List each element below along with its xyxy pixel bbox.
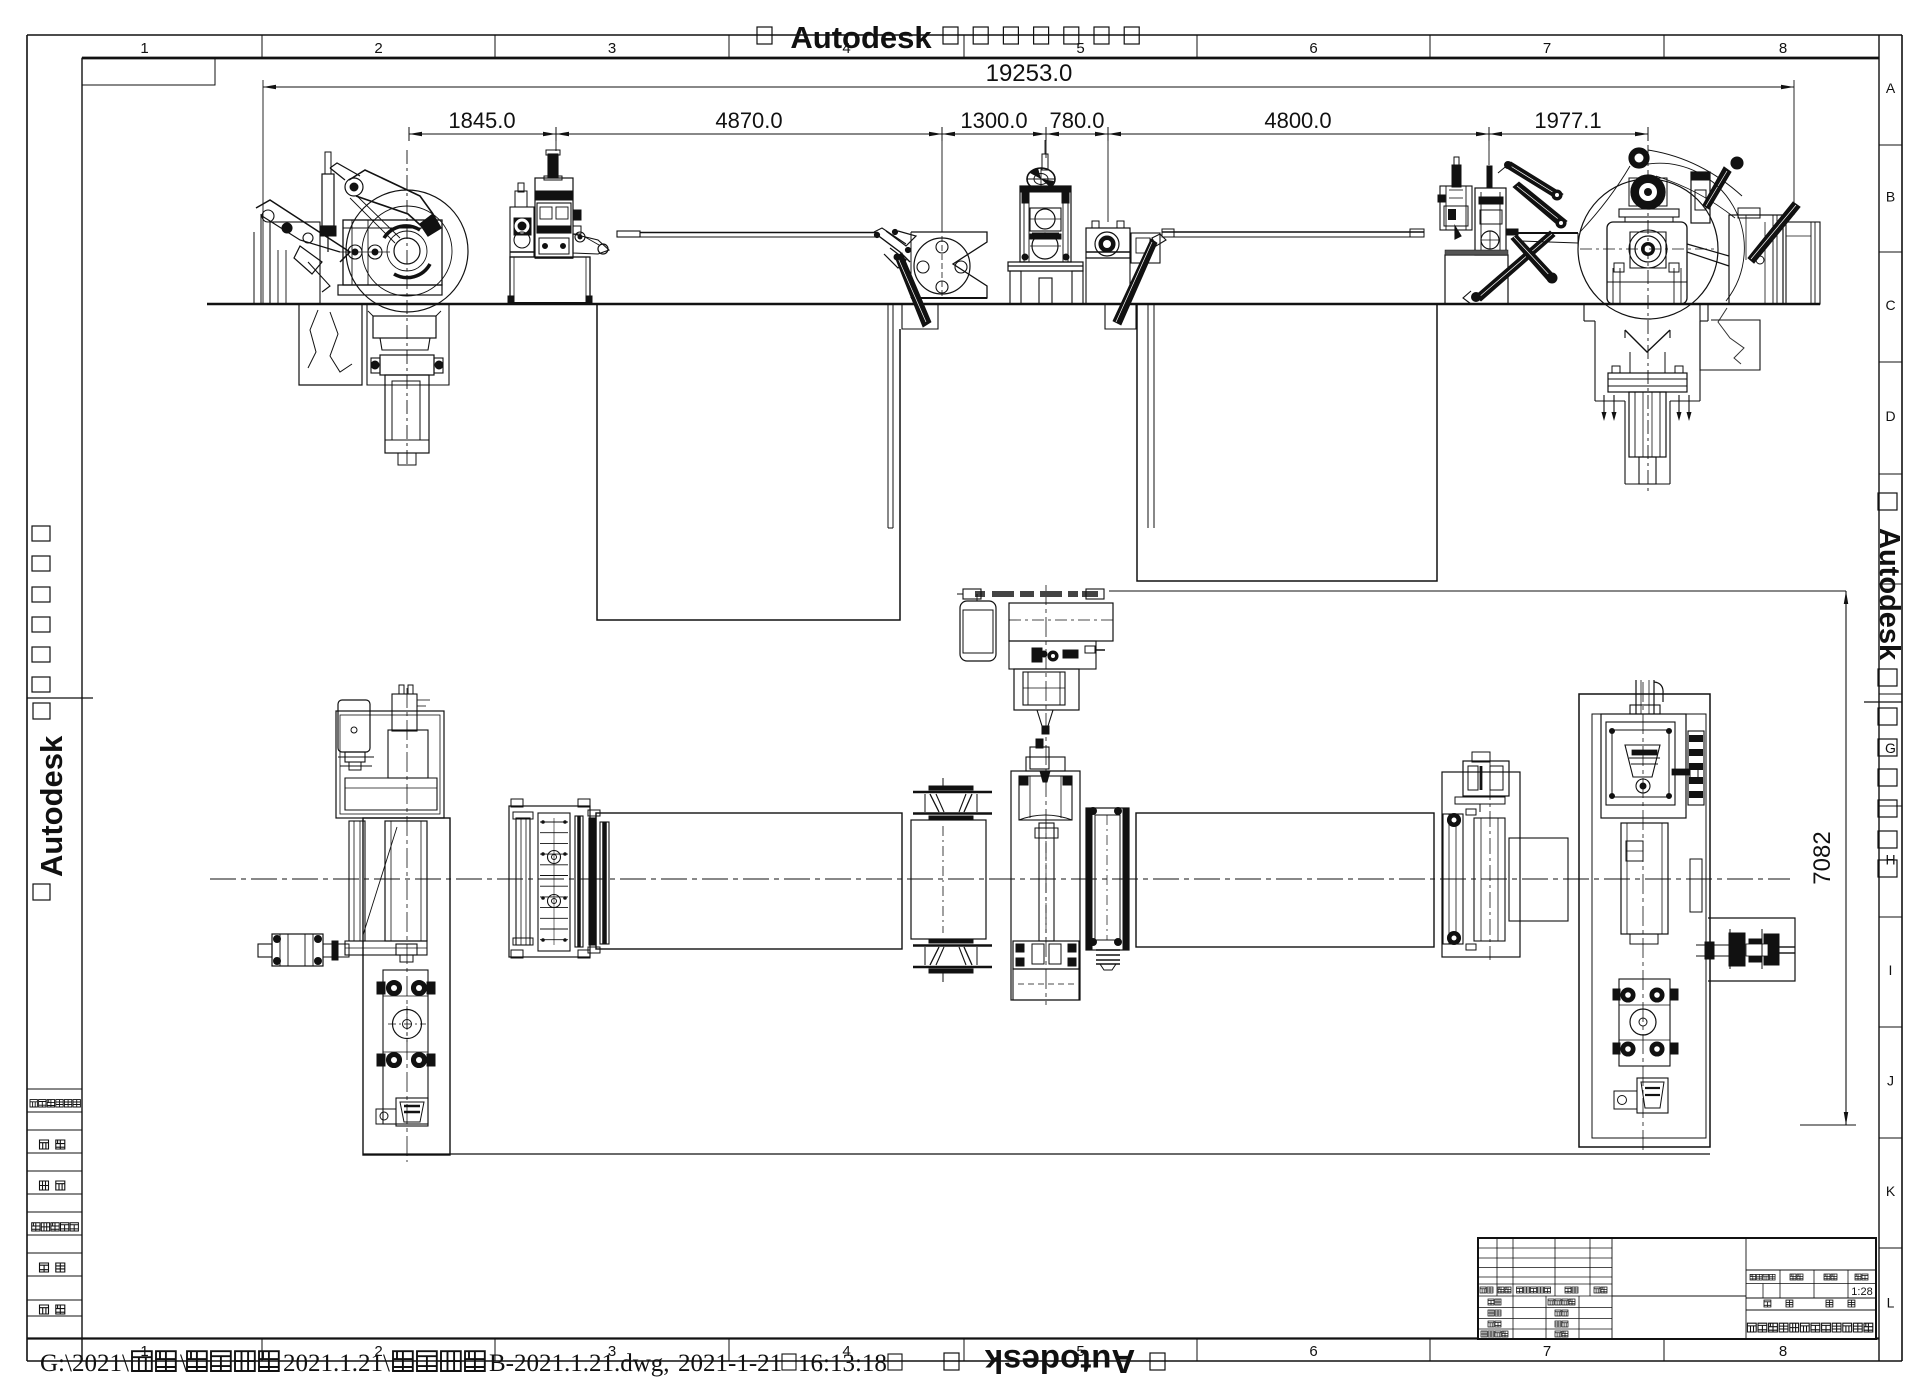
svg-text:8: 8 (1779, 1343, 1787, 1360)
svg-text:780.0: 780.0 (1049, 108, 1104, 133)
svg-text:1845.0: 1845.0 (448, 108, 515, 133)
svg-text:C: C (1885, 297, 1895, 313)
svg-text:B: B (1886, 189, 1895, 205)
svg-text:5: 5 (1076, 40, 1084, 57)
svg-text:K: K (1886, 1183, 1896, 1199)
svg-text:16:13:18: 16:13:18 (798, 1350, 887, 1377)
svg-text:A: A (1886, 80, 1896, 96)
svg-text:6: 6 (1309, 1343, 1317, 1360)
svg-text:Autodesk: Autodesk (34, 735, 69, 877)
svg-text:1300.0: 1300.0 (960, 108, 1027, 133)
svg-text:4800.0: 4800.0 (1264, 108, 1331, 133)
svg-text:2: 2 (374, 40, 382, 57)
svg-text:L: L (1887, 1295, 1895, 1311)
svg-text:I: I (1889, 962, 1893, 978)
svg-text:Autodesk: Autodesk (1873, 528, 1905, 661)
svg-text:4870.0: 4870.0 (715, 108, 782, 133)
svg-text:D: D (1885, 408, 1895, 424)
svg-text:\: \ (180, 1350, 187, 1377)
svg-text:2021-1-21: 2021-1-21 (678, 1350, 782, 1377)
svg-text:Autodesk: Autodesk (790, 20, 932, 55)
svg-text:7082: 7082 (1809, 831, 1836, 884)
svg-text:7: 7 (1543, 40, 1551, 57)
svg-text:19253.0: 19253.0 (986, 60, 1073, 87)
svg-text:8: 8 (1779, 40, 1787, 57)
svg-text:3: 3 (608, 40, 616, 57)
svg-text:Autodesk: Autodesk (984, 1343, 1135, 1380)
svg-text:G:\2021\: G:\2021\ (40, 1350, 129, 1377)
svg-text:6: 6 (1309, 40, 1317, 57)
svg-text:2021.1.21\: 2021.1.21\ (283, 1350, 390, 1377)
svg-text:J: J (1887, 1073, 1894, 1089)
svg-text:1: 1 (140, 40, 148, 57)
svg-text:1:28: 1:28 (1851, 1286, 1872, 1298)
svg-text:1977.1: 1977.1 (1534, 108, 1601, 133)
svg-text:B-2021.1.21.dwg,: B-2021.1.21.dwg, (489, 1350, 670, 1377)
svg-text:G: G (1885, 740, 1896, 756)
svg-text:7: 7 (1543, 1343, 1551, 1360)
